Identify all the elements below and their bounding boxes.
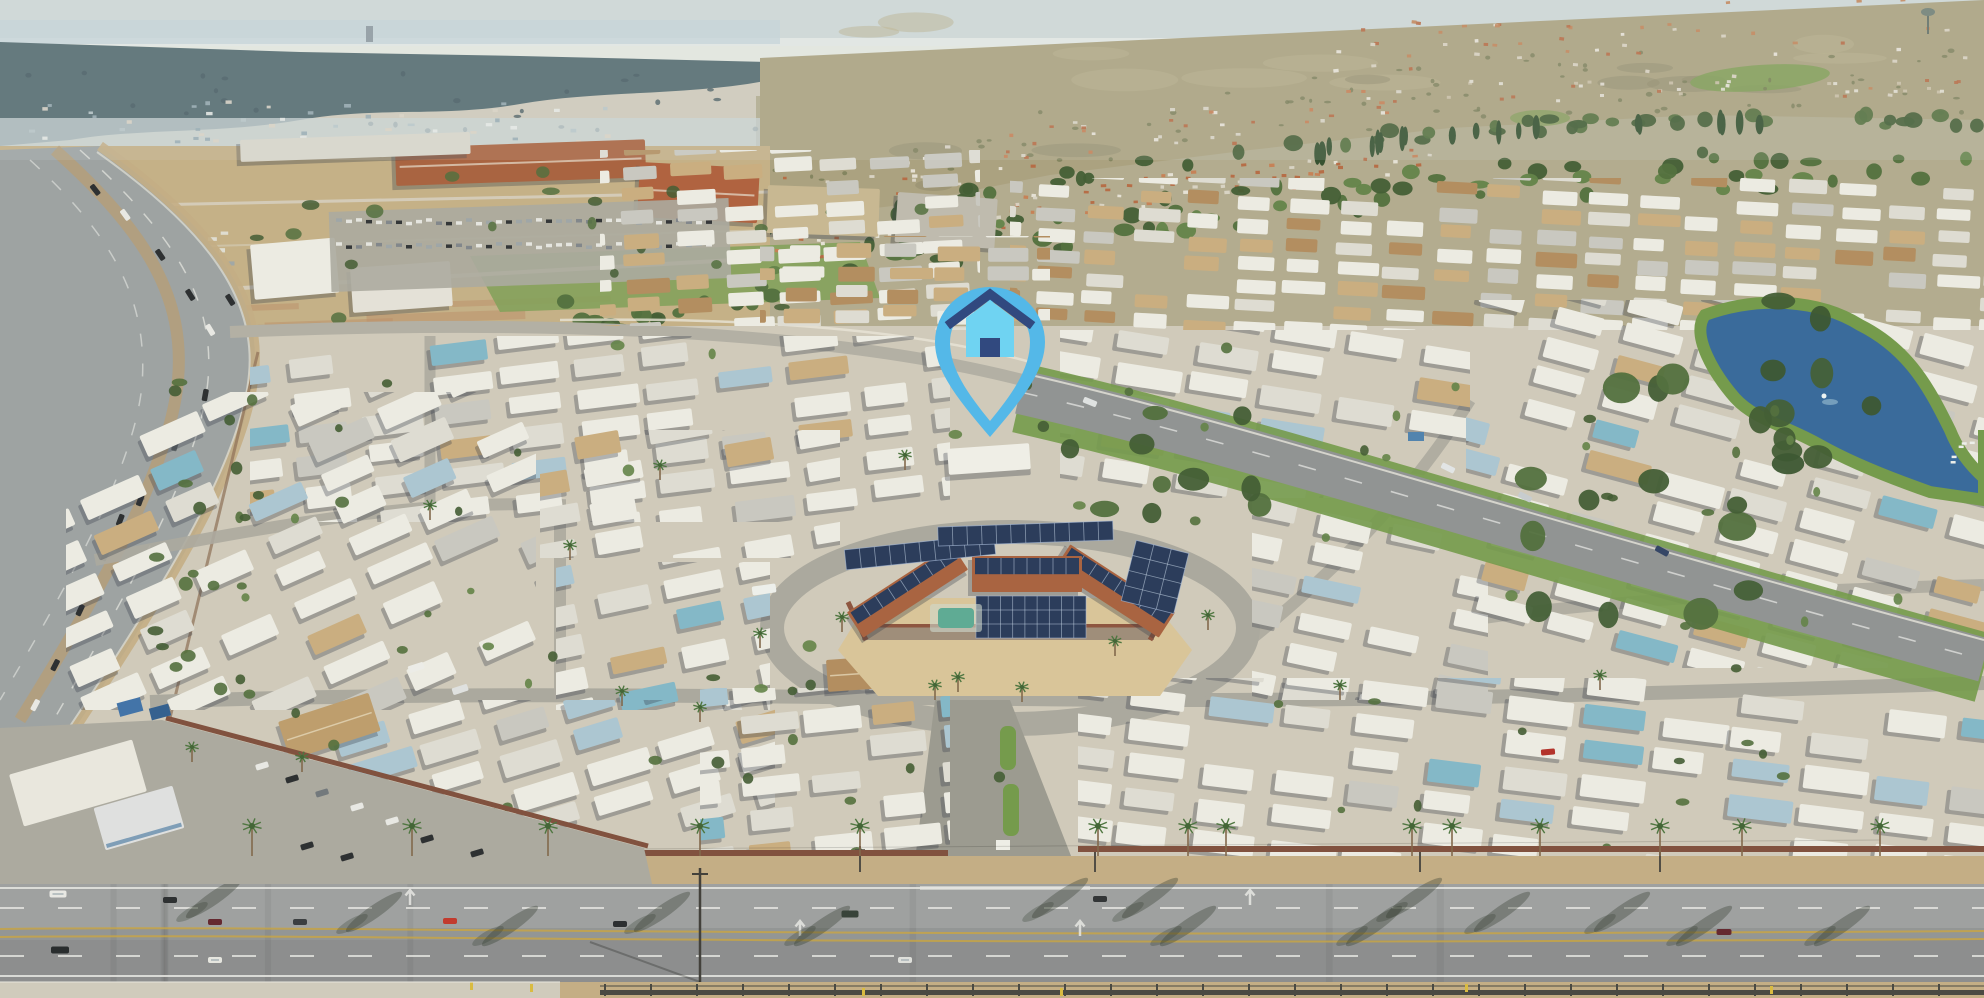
aerial-photo [0,0,1984,998]
pin-house-door [980,338,1000,357]
foreground-details-layer [0,0,1984,998]
aerial-photo-canvas [0,0,1984,998]
